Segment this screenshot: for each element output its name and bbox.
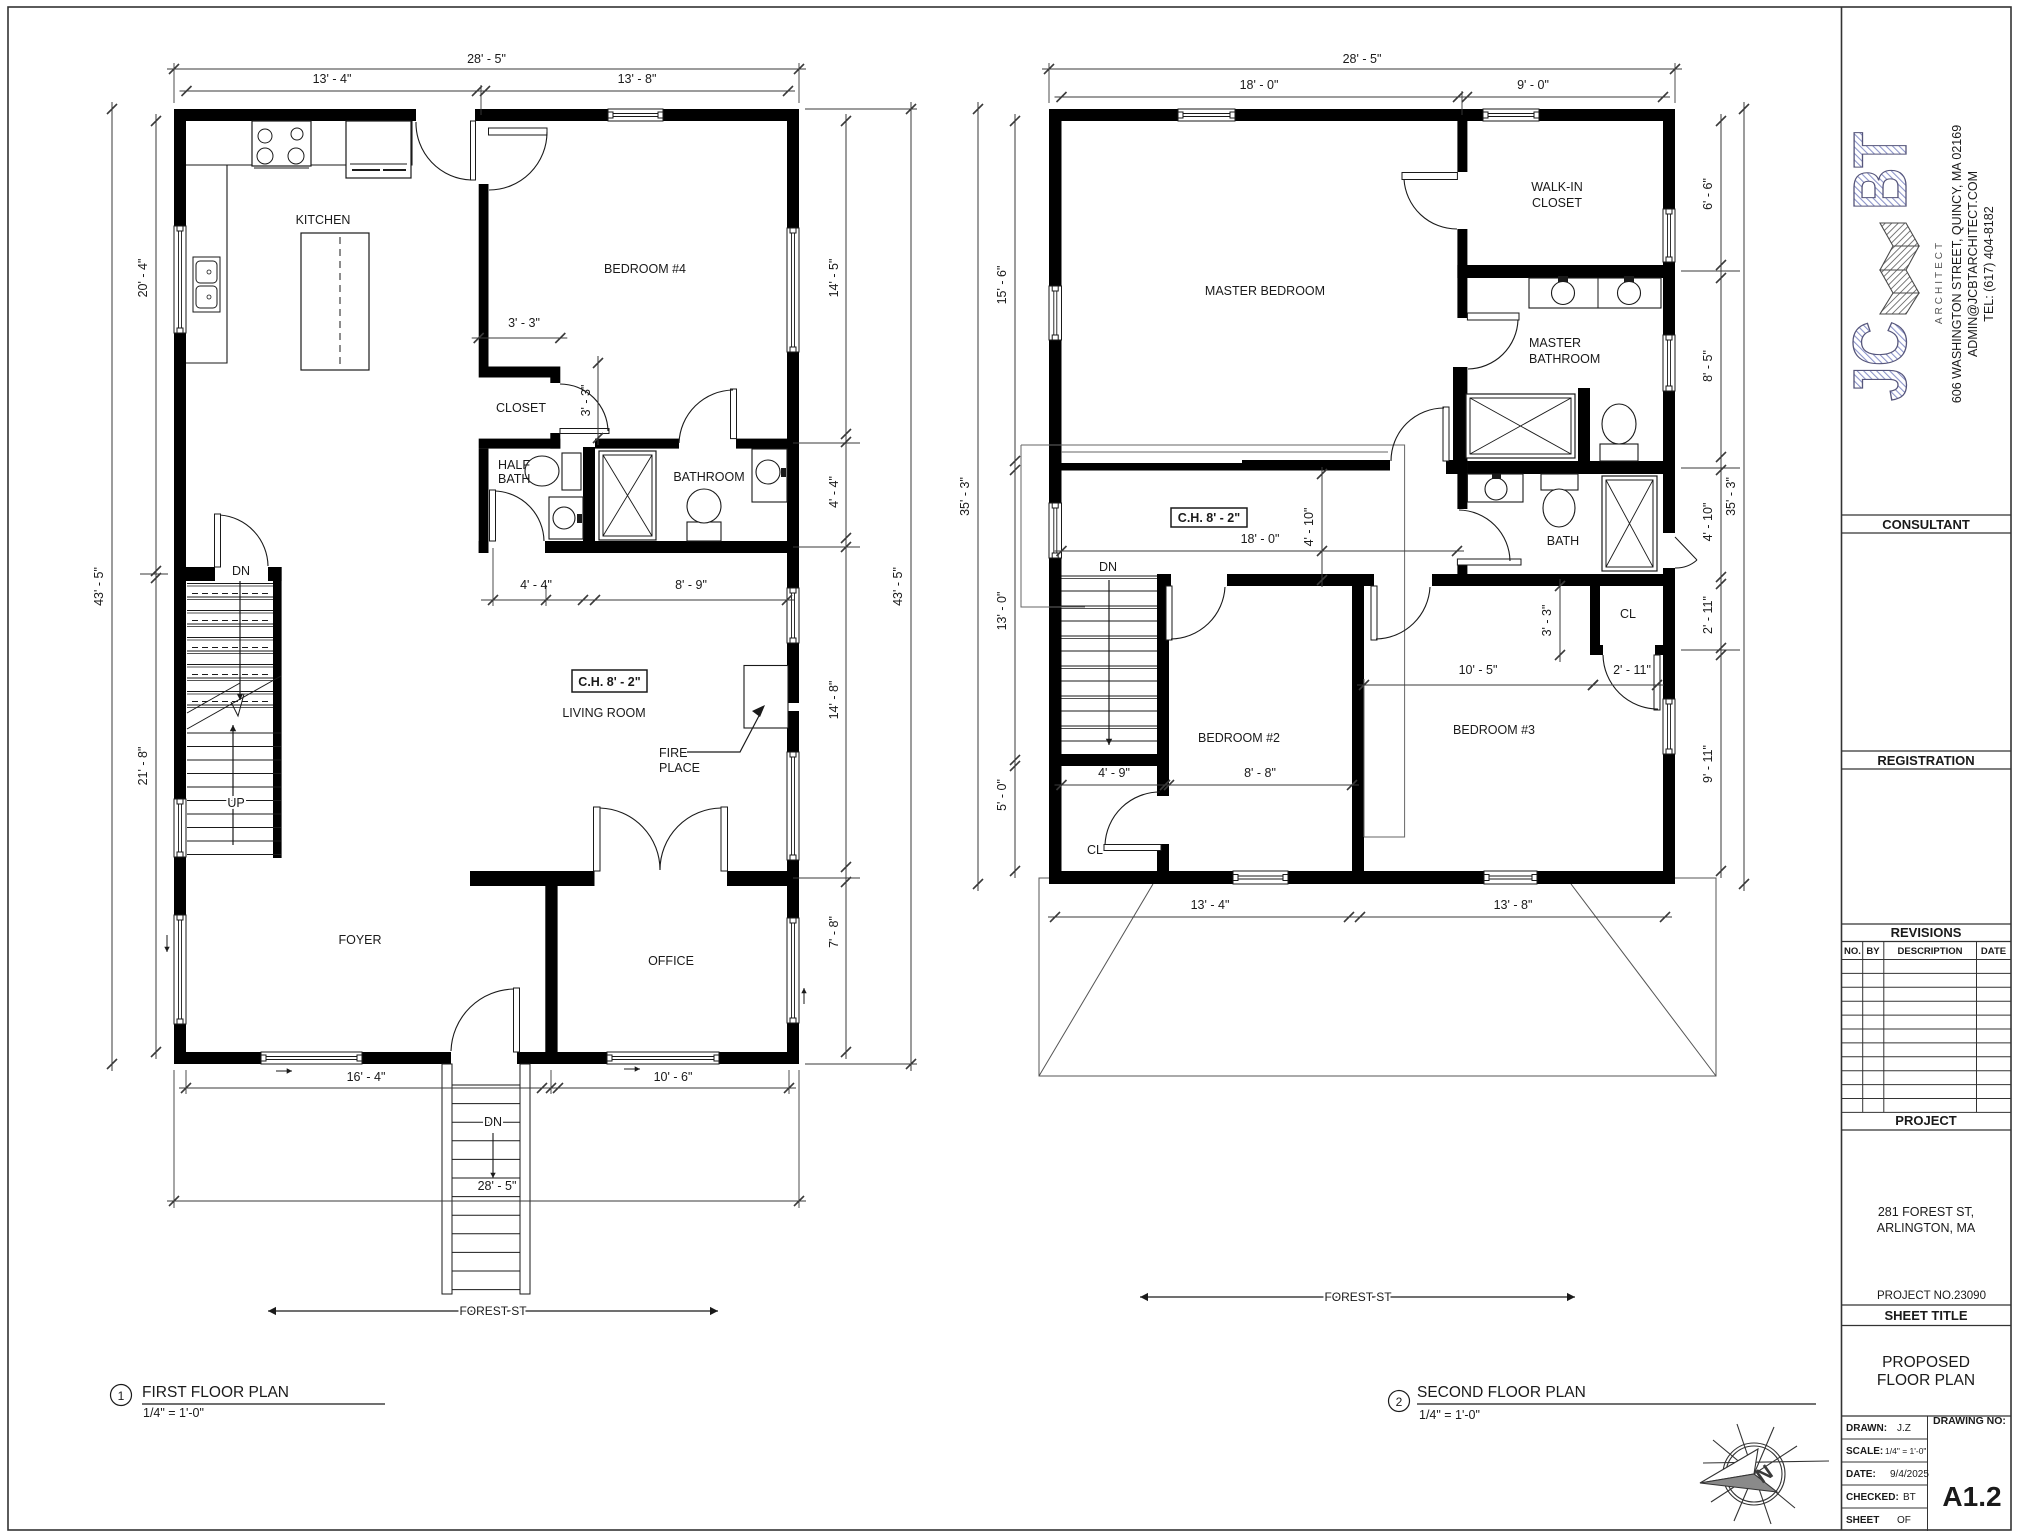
- svg-text:13' - 4": 13' - 4": [313, 72, 352, 86]
- svg-text:2' - 11": 2' - 11": [1613, 663, 1651, 677]
- svg-text:15' - 6": 15' - 6": [995, 266, 1009, 305]
- svg-text:PROJECT: PROJECT: [1895, 1113, 1956, 1128]
- svg-text:BATHROOM: BATHROOM: [1529, 352, 1600, 366]
- svg-text:BEDROOM #2: BEDROOM #2: [1198, 731, 1280, 745]
- svg-text:13' - 8": 13' - 8": [618, 72, 657, 86]
- svg-text:BATH: BATH: [1547, 534, 1579, 548]
- svg-text:10' - 5": 10' - 5": [1459, 663, 1498, 677]
- svg-text:SHEET TITLE: SHEET TITLE: [1884, 1308, 1967, 1323]
- svg-text:6' - 6": 6' - 6": [1701, 178, 1715, 210]
- svg-text:3' - 3": 3' - 3": [508, 316, 540, 330]
- svg-text:3' - 3": 3' - 3": [1540, 605, 1554, 637]
- svg-text:1/4" = 1'-0": 1/4" = 1'-0": [1419, 1408, 1480, 1422]
- svg-text:13' - 0": 13' - 0": [995, 592, 1009, 631]
- svg-text:BATHROOM: BATHROOM: [673, 470, 744, 484]
- svg-text:9' - 0": 9' - 0": [1517, 78, 1549, 92]
- svg-text:21' - 8": 21' - 8": [136, 747, 150, 786]
- svg-text:20' - 4": 20' - 4": [136, 259, 150, 298]
- svg-text:DATE:: DATE:: [1846, 1469, 1876, 1480]
- svg-text:DATE: DATE: [1981, 946, 2006, 957]
- svg-text:SECOND FLOOR PLAN: SECOND FLOOR PLAN: [1417, 1384, 1586, 1401]
- svg-text:1/4" = 1'-0": 1/4" = 1'-0": [143, 1406, 204, 1420]
- svg-text:4' - 10": 4' - 10": [1701, 503, 1715, 542]
- svg-text:CHECKED:: CHECKED:: [1846, 1492, 1899, 1503]
- svg-text:CLOSET: CLOSET: [1532, 196, 1582, 210]
- svg-text:FLOOR PLAN: FLOOR PLAN: [1877, 1372, 1975, 1389]
- svg-text:606 WASHINGTON STREET, QUINCY,: 606 WASHINGTON STREET, QUINCY, MA 02169: [1950, 125, 1964, 403]
- svg-text:MASTER: MASTER: [1529, 336, 1581, 350]
- svg-text:16' - 4": 16' - 4": [347, 1070, 386, 1084]
- svg-text:BT: BT: [1838, 132, 1922, 210]
- svg-text:PLACE: PLACE: [659, 761, 700, 775]
- svg-text:14' - 8": 14' - 8": [827, 681, 841, 720]
- svg-text:DRAWING NO:: DRAWING NO:: [1933, 1415, 2006, 1427]
- svg-text:OF: OF: [1897, 1515, 1911, 1526]
- svg-text:FIRE: FIRE: [659, 746, 687, 760]
- svg-text:4' - 4": 4' - 4": [827, 476, 841, 508]
- svg-text:REVISIONS: REVISIONS: [1891, 925, 1962, 940]
- svg-text:BT: BT: [1903, 1492, 1916, 1503]
- svg-text:UP: UP: [227, 796, 244, 810]
- svg-text:A1.2: A1.2: [1942, 1481, 2001, 1512]
- svg-text:BY: BY: [1866, 946, 1880, 957]
- svg-text:TEL: (617) 404-8182: TEL: (617) 404-8182: [1982, 206, 1996, 321]
- svg-text:SCALE:: SCALE:: [1846, 1446, 1883, 1457]
- svg-text:9' - 11": 9' - 11": [1701, 745, 1715, 783]
- svg-text:8' - 8": 8' - 8": [1244, 766, 1276, 780]
- svg-text:2: 2: [1396, 1395, 1403, 1409]
- svg-text:DESCRIPTION: DESCRIPTION: [1898, 946, 1963, 957]
- svg-text:35' - 3": 35' - 3": [958, 477, 972, 516]
- svg-text:1/4" = 1'-0": 1/4" = 1'-0": [1885, 1446, 1926, 1456]
- svg-text:DN: DN: [232, 564, 250, 578]
- svg-text:FOREST ST: FOREST ST: [1324, 1290, 1392, 1304]
- svg-text:MASTER BEDROOM: MASTER BEDROOM: [1205, 284, 1325, 298]
- svg-text:23090: 23090: [1954, 1290, 1986, 1302]
- svg-text:8' - 9": 8' - 9": [675, 578, 707, 592]
- svg-text:CONSULTANT: CONSULTANT: [1882, 517, 1970, 532]
- svg-text:PROJECT NO.: PROJECT NO.: [1877, 1290, 1954, 1302]
- svg-text:WALK-IN: WALK-IN: [1531, 180, 1583, 194]
- svg-text:13' - 8": 13' - 8": [1494, 898, 1533, 912]
- svg-text:13' - 4": 13' - 4": [1191, 898, 1230, 912]
- svg-text:10' - 6": 10' - 6": [654, 1070, 693, 1084]
- svg-text:DN: DN: [1099, 560, 1117, 574]
- svg-text:CLOSET: CLOSET: [496, 401, 546, 415]
- svg-text:8' - 5": 8' - 5": [1701, 350, 1715, 382]
- svg-text:43' - 5": 43' - 5": [891, 567, 905, 606]
- svg-text:7' - 8": 7' - 8": [827, 916, 841, 948]
- svg-text:J.Z: J.Z: [1897, 1423, 1911, 1434]
- svg-text:18' - 0": 18' - 0": [1241, 532, 1280, 546]
- svg-text:2' - 11": 2' - 11": [1701, 596, 1715, 634]
- svg-text:35' - 3": 35' - 3": [1724, 477, 1738, 516]
- svg-text:JC: JC: [1838, 321, 1922, 401]
- svg-text:43' - 5": 43' - 5": [92, 567, 106, 606]
- svg-text:KITCHEN: KITCHEN: [296, 213, 351, 227]
- svg-text:4' - 10": 4' - 10": [1302, 508, 1316, 547]
- svg-text:28' - 5": 28' - 5": [467, 52, 506, 66]
- svg-text:FOYER: FOYER: [338, 933, 381, 947]
- svg-text:ARLINGTON, MA: ARLINGTON, MA: [1877, 1221, 1976, 1235]
- svg-text:3' - 3": 3' - 3": [579, 385, 593, 417]
- svg-text:5' - 0": 5' - 0": [995, 779, 1009, 811]
- svg-text:4' - 9": 4' - 9": [1098, 766, 1130, 780]
- svg-text:FOREST ST: FOREST ST: [459, 1304, 527, 1318]
- svg-text:CL: CL: [1620, 607, 1636, 621]
- svg-text:28' - 5": 28' - 5": [478, 1179, 517, 1193]
- svg-text:14' - 5": 14' - 5": [827, 259, 841, 298]
- svg-text:SHEET: SHEET: [1846, 1515, 1879, 1526]
- svg-text:1: 1: [118, 1389, 125, 1403]
- svg-text:9/4/2025: 9/4/2025: [1890, 1469, 1929, 1480]
- svg-text:DRAWN:: DRAWN:: [1846, 1423, 1887, 1434]
- svg-text:ARCHITECT: ARCHITECT: [1934, 240, 1945, 324]
- svg-text:NO.: NO.: [1844, 946, 1861, 957]
- svg-text:PROPOSED: PROPOSED: [1882, 1354, 1970, 1371]
- svg-text:FIRST FLOOR PLAN: FIRST FLOOR PLAN: [142, 1384, 289, 1401]
- svg-text:BEDROOM #3: BEDROOM #3: [1453, 723, 1535, 737]
- svg-text:LIVING ROOM: LIVING ROOM: [562, 706, 645, 720]
- svg-text:18' - 0": 18' - 0": [1240, 78, 1279, 92]
- svg-text:DN: DN: [484, 1115, 502, 1129]
- svg-text:BEDROOM #4: BEDROOM #4: [604, 262, 686, 276]
- svg-text:28' - 5": 28' - 5": [1343, 52, 1382, 66]
- svg-text:HALF: HALF: [498, 458, 530, 472]
- svg-text:BATH: BATH: [498, 472, 530, 486]
- svg-text:4' - 4": 4' - 4": [520, 578, 552, 592]
- svg-text:281 FOREST ST,: 281 FOREST ST,: [1878, 1205, 1974, 1219]
- svg-text:OFFICE: OFFICE: [648, 954, 694, 968]
- svg-text:C.H. 8' - 2": C.H. 8' - 2": [1178, 511, 1240, 525]
- svg-text:C.H. 8' - 2": C.H. 8' - 2": [578, 675, 640, 689]
- svg-text:ADMIN@JCBTARCHITECT.COM: ADMIN@JCBTARCHITECT.COM: [1966, 171, 1980, 357]
- svg-text:REGISTRATION: REGISTRATION: [1877, 753, 1974, 768]
- svg-text:CL: CL: [1087, 843, 1103, 857]
